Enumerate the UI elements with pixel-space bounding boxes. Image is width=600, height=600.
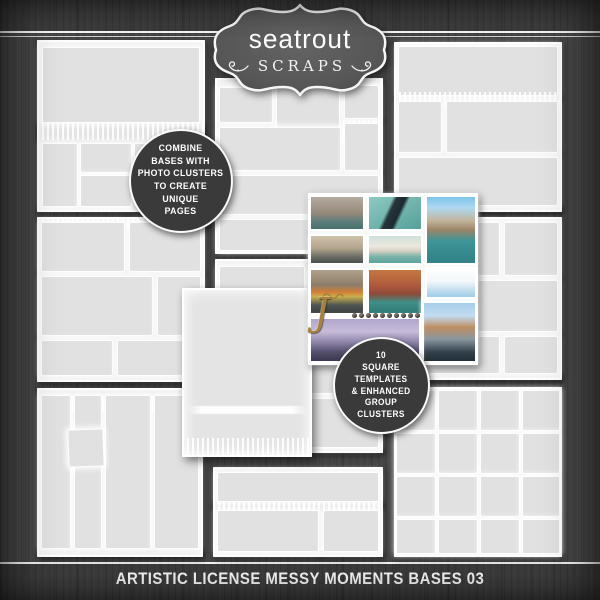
brand-subrow: SCRAPS bbox=[207, 57, 393, 75]
photo-block bbox=[75, 396, 101, 548]
brand-subname: SCRAPS bbox=[254, 57, 346, 75]
photo-rialto-bridge-sky bbox=[425, 195, 477, 265]
photo-block bbox=[481, 477, 519, 516]
photo-block bbox=[42, 341, 112, 375]
photo-block bbox=[345, 124, 378, 170]
photo-block bbox=[505, 223, 557, 275]
callout-line: 10 bbox=[352, 350, 411, 362]
callout-line: COMBINE bbox=[138, 143, 224, 156]
photo-canal-street-boats bbox=[309, 234, 365, 265]
photo-block bbox=[220, 128, 340, 170]
photo-block bbox=[106, 396, 150, 548]
photo-block bbox=[42, 396, 70, 548]
photo-block bbox=[43, 144, 77, 206]
callout-line: TEMPLATES bbox=[352, 374, 411, 386]
callout-line: CLUSTERS bbox=[352, 409, 411, 421]
photo-block bbox=[218, 473, 378, 501]
callout-text: COMBINE BASES WITH PHOTO CLUSTERS TO CRE… bbox=[138, 143, 224, 218]
callout-combine-bases: COMBINE BASES WITH PHOTO CLUSTERS TO CRE… bbox=[129, 129, 233, 233]
gold-monogram: J bbox=[314, 293, 329, 331]
photo-block bbox=[397, 477, 435, 516]
photo-gondolas-waterfront bbox=[422, 301, 477, 363]
product-title: ARTISTIC LICENSE MESSY MOMENTS BASES 03 bbox=[36, 569, 564, 589]
paint-stroke bbox=[187, 406, 307, 414]
bead-row bbox=[352, 313, 420, 318]
bead bbox=[366, 313, 371, 318]
photo-block bbox=[523, 434, 559, 473]
photo-block bbox=[43, 48, 199, 122]
blank-page bbox=[182, 288, 312, 457]
photo-block bbox=[505, 337, 557, 373]
photo-block bbox=[81, 176, 131, 206]
callout-line: UNIQUE bbox=[138, 194, 224, 207]
photo-block bbox=[439, 477, 477, 516]
photo-block bbox=[81, 144, 131, 172]
bead bbox=[408, 313, 413, 318]
photo-block bbox=[439, 391, 477, 430]
photo-block bbox=[397, 520, 435, 553]
bead bbox=[359, 313, 364, 318]
photo-block bbox=[42, 223, 124, 271]
photo-block bbox=[68, 429, 103, 466]
photo-block bbox=[523, 391, 559, 430]
photo-block bbox=[481, 434, 519, 473]
footer-rule bbox=[0, 562, 600, 564]
brand-name: seatrout bbox=[210, 24, 390, 55]
callout-line: PHOTO CLUSTERS bbox=[138, 168, 224, 181]
bead bbox=[401, 313, 406, 318]
photo-block bbox=[439, 520, 477, 553]
paint-drip bbox=[182, 438, 312, 455]
photo-block bbox=[397, 434, 435, 473]
bead bbox=[373, 313, 378, 318]
bead bbox=[352, 313, 357, 318]
callout-line: SQUARE bbox=[352, 362, 411, 374]
photo-gondola-top-view bbox=[367, 195, 423, 231]
flourish-left-icon bbox=[227, 59, 249, 73]
photo-block bbox=[42, 277, 152, 335]
photo-colorful-canal-houses bbox=[367, 268, 423, 315]
photo-salute-church bbox=[367, 234, 423, 265]
bead bbox=[394, 313, 399, 318]
callout-line: BASES WITH bbox=[138, 156, 224, 169]
template-page-3 bbox=[37, 388, 203, 557]
photo-white-wash-sky bbox=[425, 267, 477, 299]
flourish-right-icon bbox=[351, 59, 373, 73]
photo-block bbox=[218, 511, 318, 551]
callout-line: PAGES bbox=[138, 206, 224, 219]
bead bbox=[387, 313, 392, 318]
bead bbox=[415, 313, 420, 318]
photo-block bbox=[523, 520, 559, 553]
photo-block bbox=[447, 102, 557, 152]
photo-grand-canal-buildings bbox=[309, 195, 365, 231]
product-preview: J COMBINE BASES WITH PHOTO CLUSTERS TO C… bbox=[0, 0, 600, 600]
photo-block bbox=[439, 434, 477, 473]
photo-block bbox=[399, 47, 557, 95]
callout-line: & ENHANCED bbox=[352, 386, 411, 398]
photo-block bbox=[324, 511, 378, 551]
template-page-9 bbox=[213, 467, 383, 557]
brand-plaque: seatrout SCRAPS bbox=[207, 2, 393, 98]
callout-line: GROUP bbox=[352, 397, 411, 409]
template-page-6 bbox=[394, 42, 562, 212]
template-page-2 bbox=[37, 217, 205, 382]
callout-line: TO CREATE bbox=[138, 181, 224, 194]
photo-block bbox=[481, 520, 519, 553]
photo-block bbox=[481, 391, 519, 430]
callout-ten-templates: 10 SQUARE TEMPLATES & ENHANCED GROUP CLU… bbox=[333, 337, 430, 434]
callout-text: 10 SQUARE TEMPLATES & ENHANCED GROUP CLU… bbox=[352, 350, 411, 421]
photo-block bbox=[399, 102, 441, 152]
bead bbox=[380, 313, 385, 318]
photo-block bbox=[523, 477, 559, 516]
